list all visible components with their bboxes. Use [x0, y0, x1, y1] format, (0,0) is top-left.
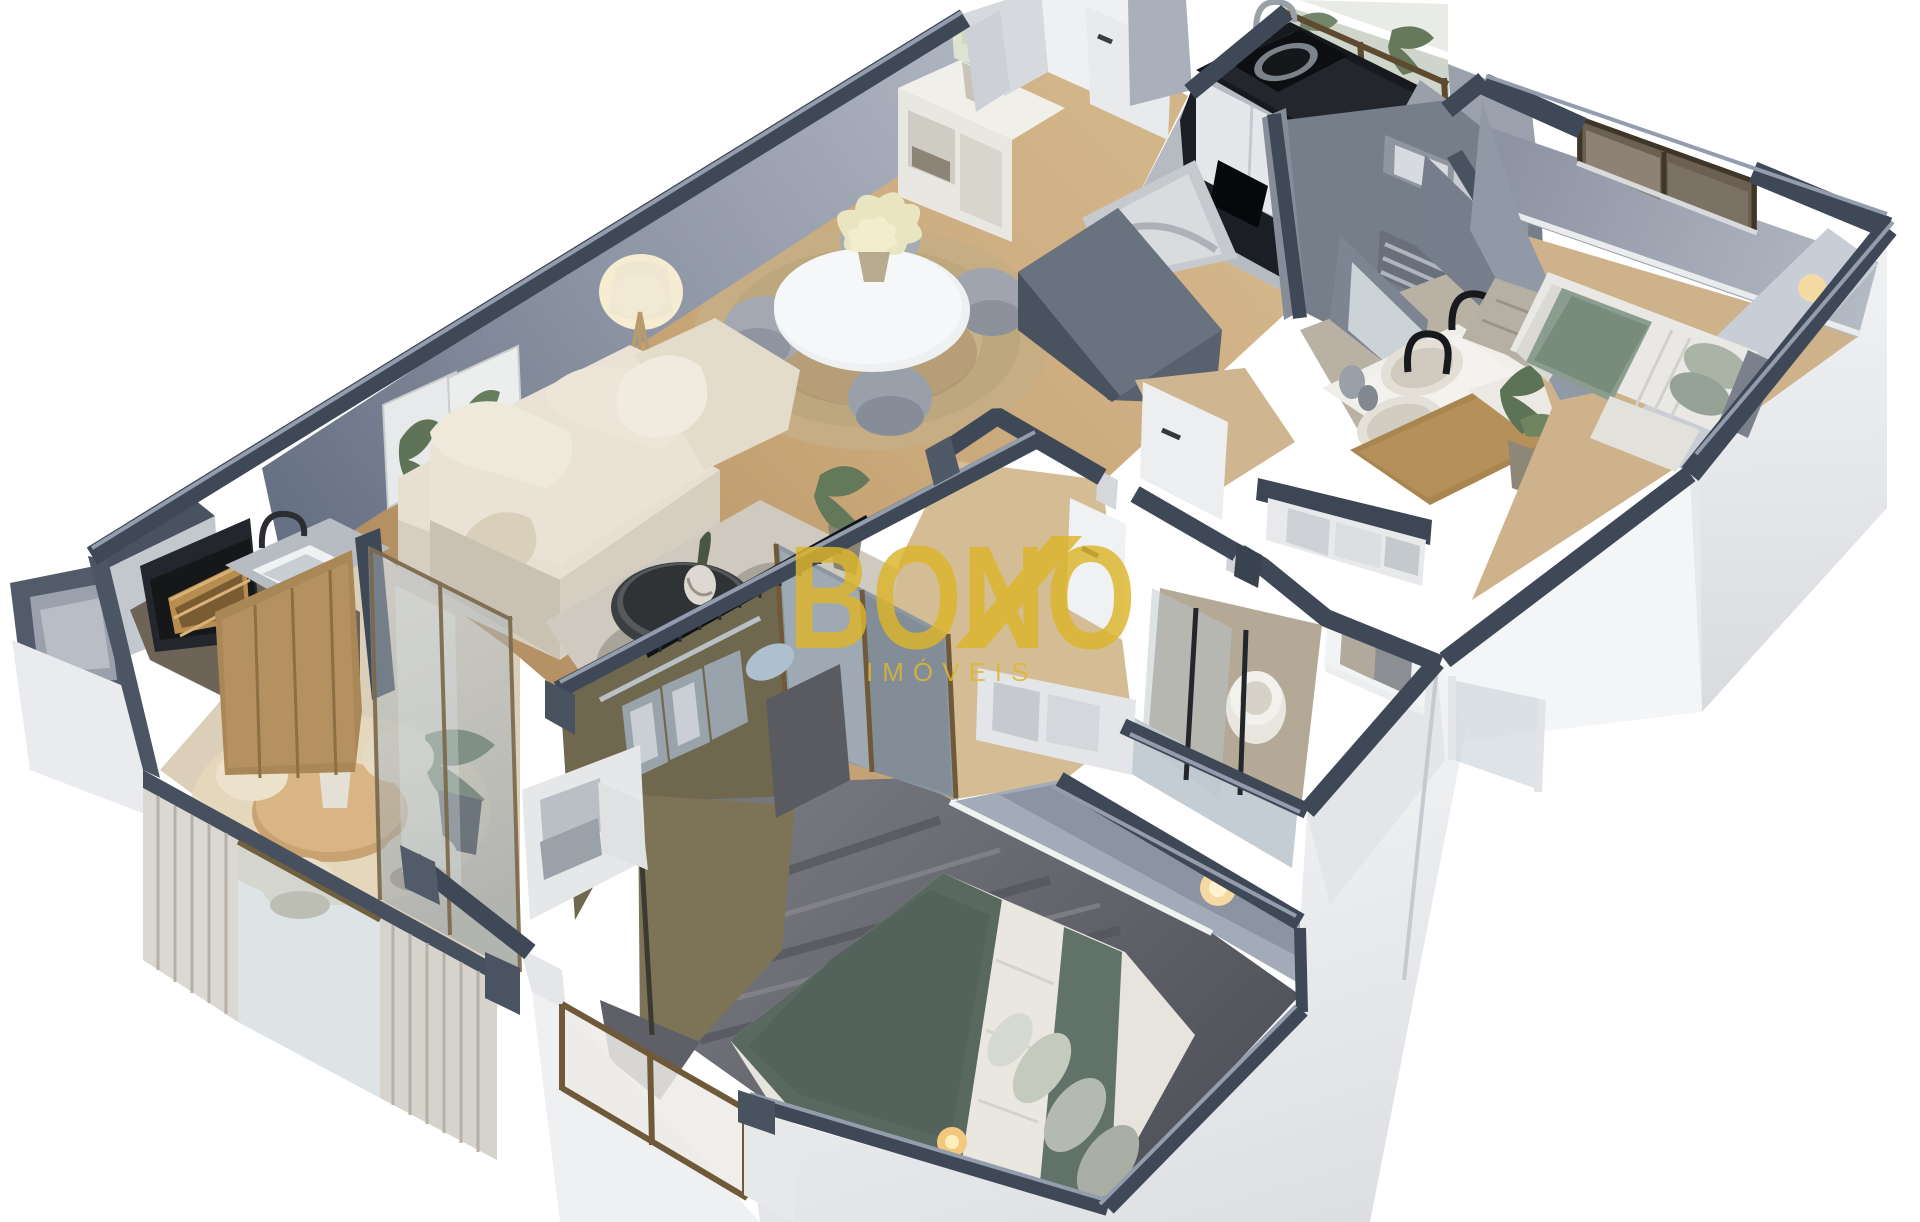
svg-text:BONO: BONO — [788, 516, 1136, 680]
svg-text:IMÓVEIS: IMÓVEIS — [866, 657, 1037, 687]
